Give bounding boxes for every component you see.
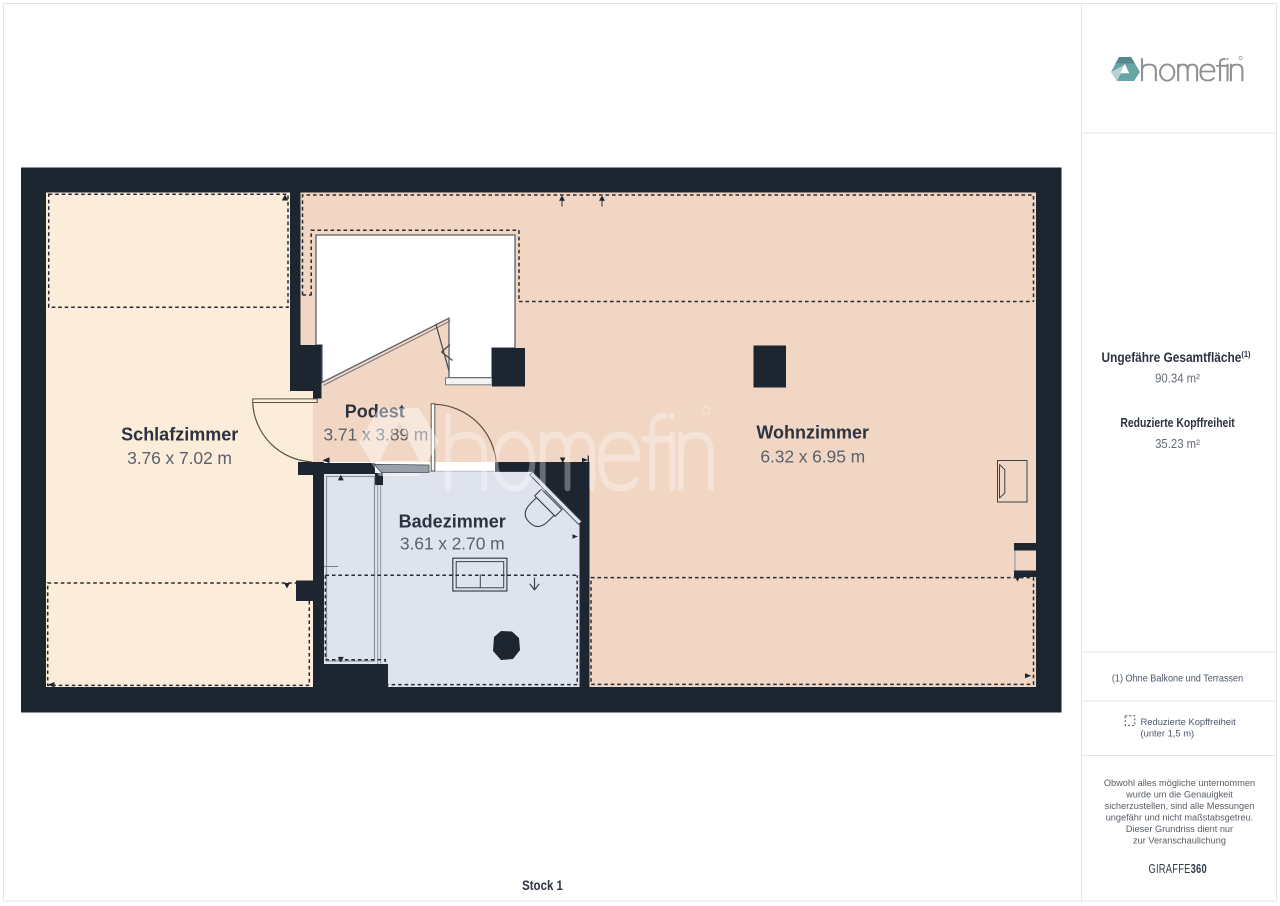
svg-text:Schlafzimmer: Schlafzimmer bbox=[121, 425, 238, 445]
svg-text:Ungefähre Gesamtfläche(1): Ungefähre Gesamtfläche(1) bbox=[1102, 349, 1251, 365]
svg-text:ungefähr und nicht maßstabsget: ungefähr und nicht maßstabsgetreu. bbox=[1106, 812, 1254, 822]
svg-text:Obwohl alles mögliche unternom: Obwohl alles mögliche unternommen bbox=[1104, 778, 1255, 788]
svg-text:3.76 x 7.02 m: 3.76 x 7.02 m bbox=[127, 448, 232, 468]
svg-text:wurde um die Genauigkeit: wurde um die Genauigkeit bbox=[1125, 789, 1233, 799]
svg-text:35.23 m²: 35.23 m² bbox=[1155, 436, 1200, 451]
svg-text:90.34 m²: 90.34 m² bbox=[1155, 371, 1200, 386]
svg-text:Reduzierte Kopffreiheit: Reduzierte Kopffreiheit bbox=[1120, 416, 1234, 430]
svg-text:(1) Ohne Balkone und Terrassen: (1) Ohne Balkone und Terrassen bbox=[1112, 673, 1243, 685]
svg-text:(unter 1,5 m): (unter 1,5 m) bbox=[1141, 727, 1195, 738]
svg-text:Wohnzimmer: Wohnzimmer bbox=[756, 423, 869, 443]
svg-text:Reduzierte Kopffreiheit: Reduzierte Kopffreiheit bbox=[1141, 716, 1237, 727]
svg-text:6.32 x 6.95 m: 6.32 x 6.95 m bbox=[760, 447, 865, 467]
svg-text:Dieser Grundriss dient nur: Dieser Grundriss dient nur bbox=[1126, 824, 1233, 834]
svg-text:Badezimmer: Badezimmer bbox=[399, 512, 506, 532]
svg-text:3.61 x 2.70 m: 3.61 x 2.70 m bbox=[400, 534, 505, 554]
svg-text:sicherzustellen, sind alle Mes: sicherzustellen, sind alle Messungen bbox=[1105, 801, 1255, 811]
svg-text:Stock 1: Stock 1 bbox=[522, 877, 563, 893]
svg-text:zur Veranschaulichung: zur Veranschaulichung bbox=[1133, 835, 1226, 845]
svg-text:GIRAFFE360: GIRAFFE360 bbox=[1148, 863, 1206, 877]
